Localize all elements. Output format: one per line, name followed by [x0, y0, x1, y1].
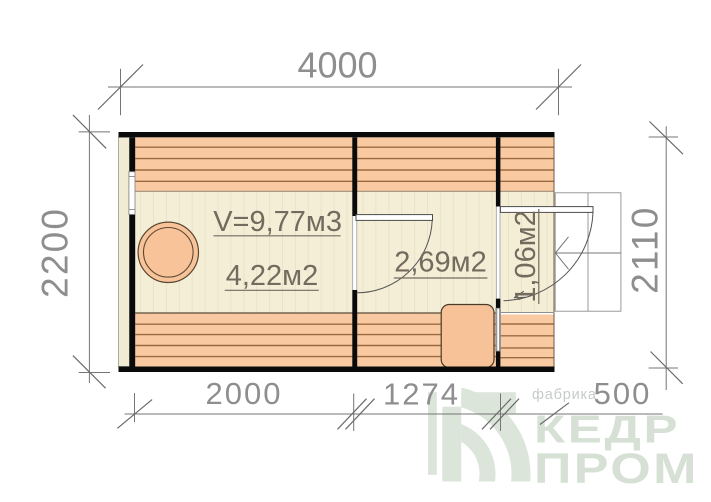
- svg-text:500: 500: [594, 376, 652, 411]
- svg-text:2200: 2200: [35, 207, 76, 298]
- svg-text:4000: 4000: [297, 45, 377, 86]
- svg-text:1274: 1274: [383, 377, 460, 412]
- svg-text:V=9,77м3: V=9,77м3: [213, 206, 342, 238]
- svg-text:ПРОМ: ПРОМ: [534, 445, 699, 493]
- svg-text:фабрика: фабрика: [532, 387, 597, 403]
- svg-text:2,69м2: 2,69м2: [394, 247, 487, 279]
- svg-text:1,06м2: 1,06м2: [510, 210, 542, 303]
- svg-text:2110: 2110: [625, 206, 666, 294]
- svg-text:4,22м2: 4,22м2: [226, 260, 319, 292]
- svg-text:2000: 2000: [206, 376, 283, 411]
